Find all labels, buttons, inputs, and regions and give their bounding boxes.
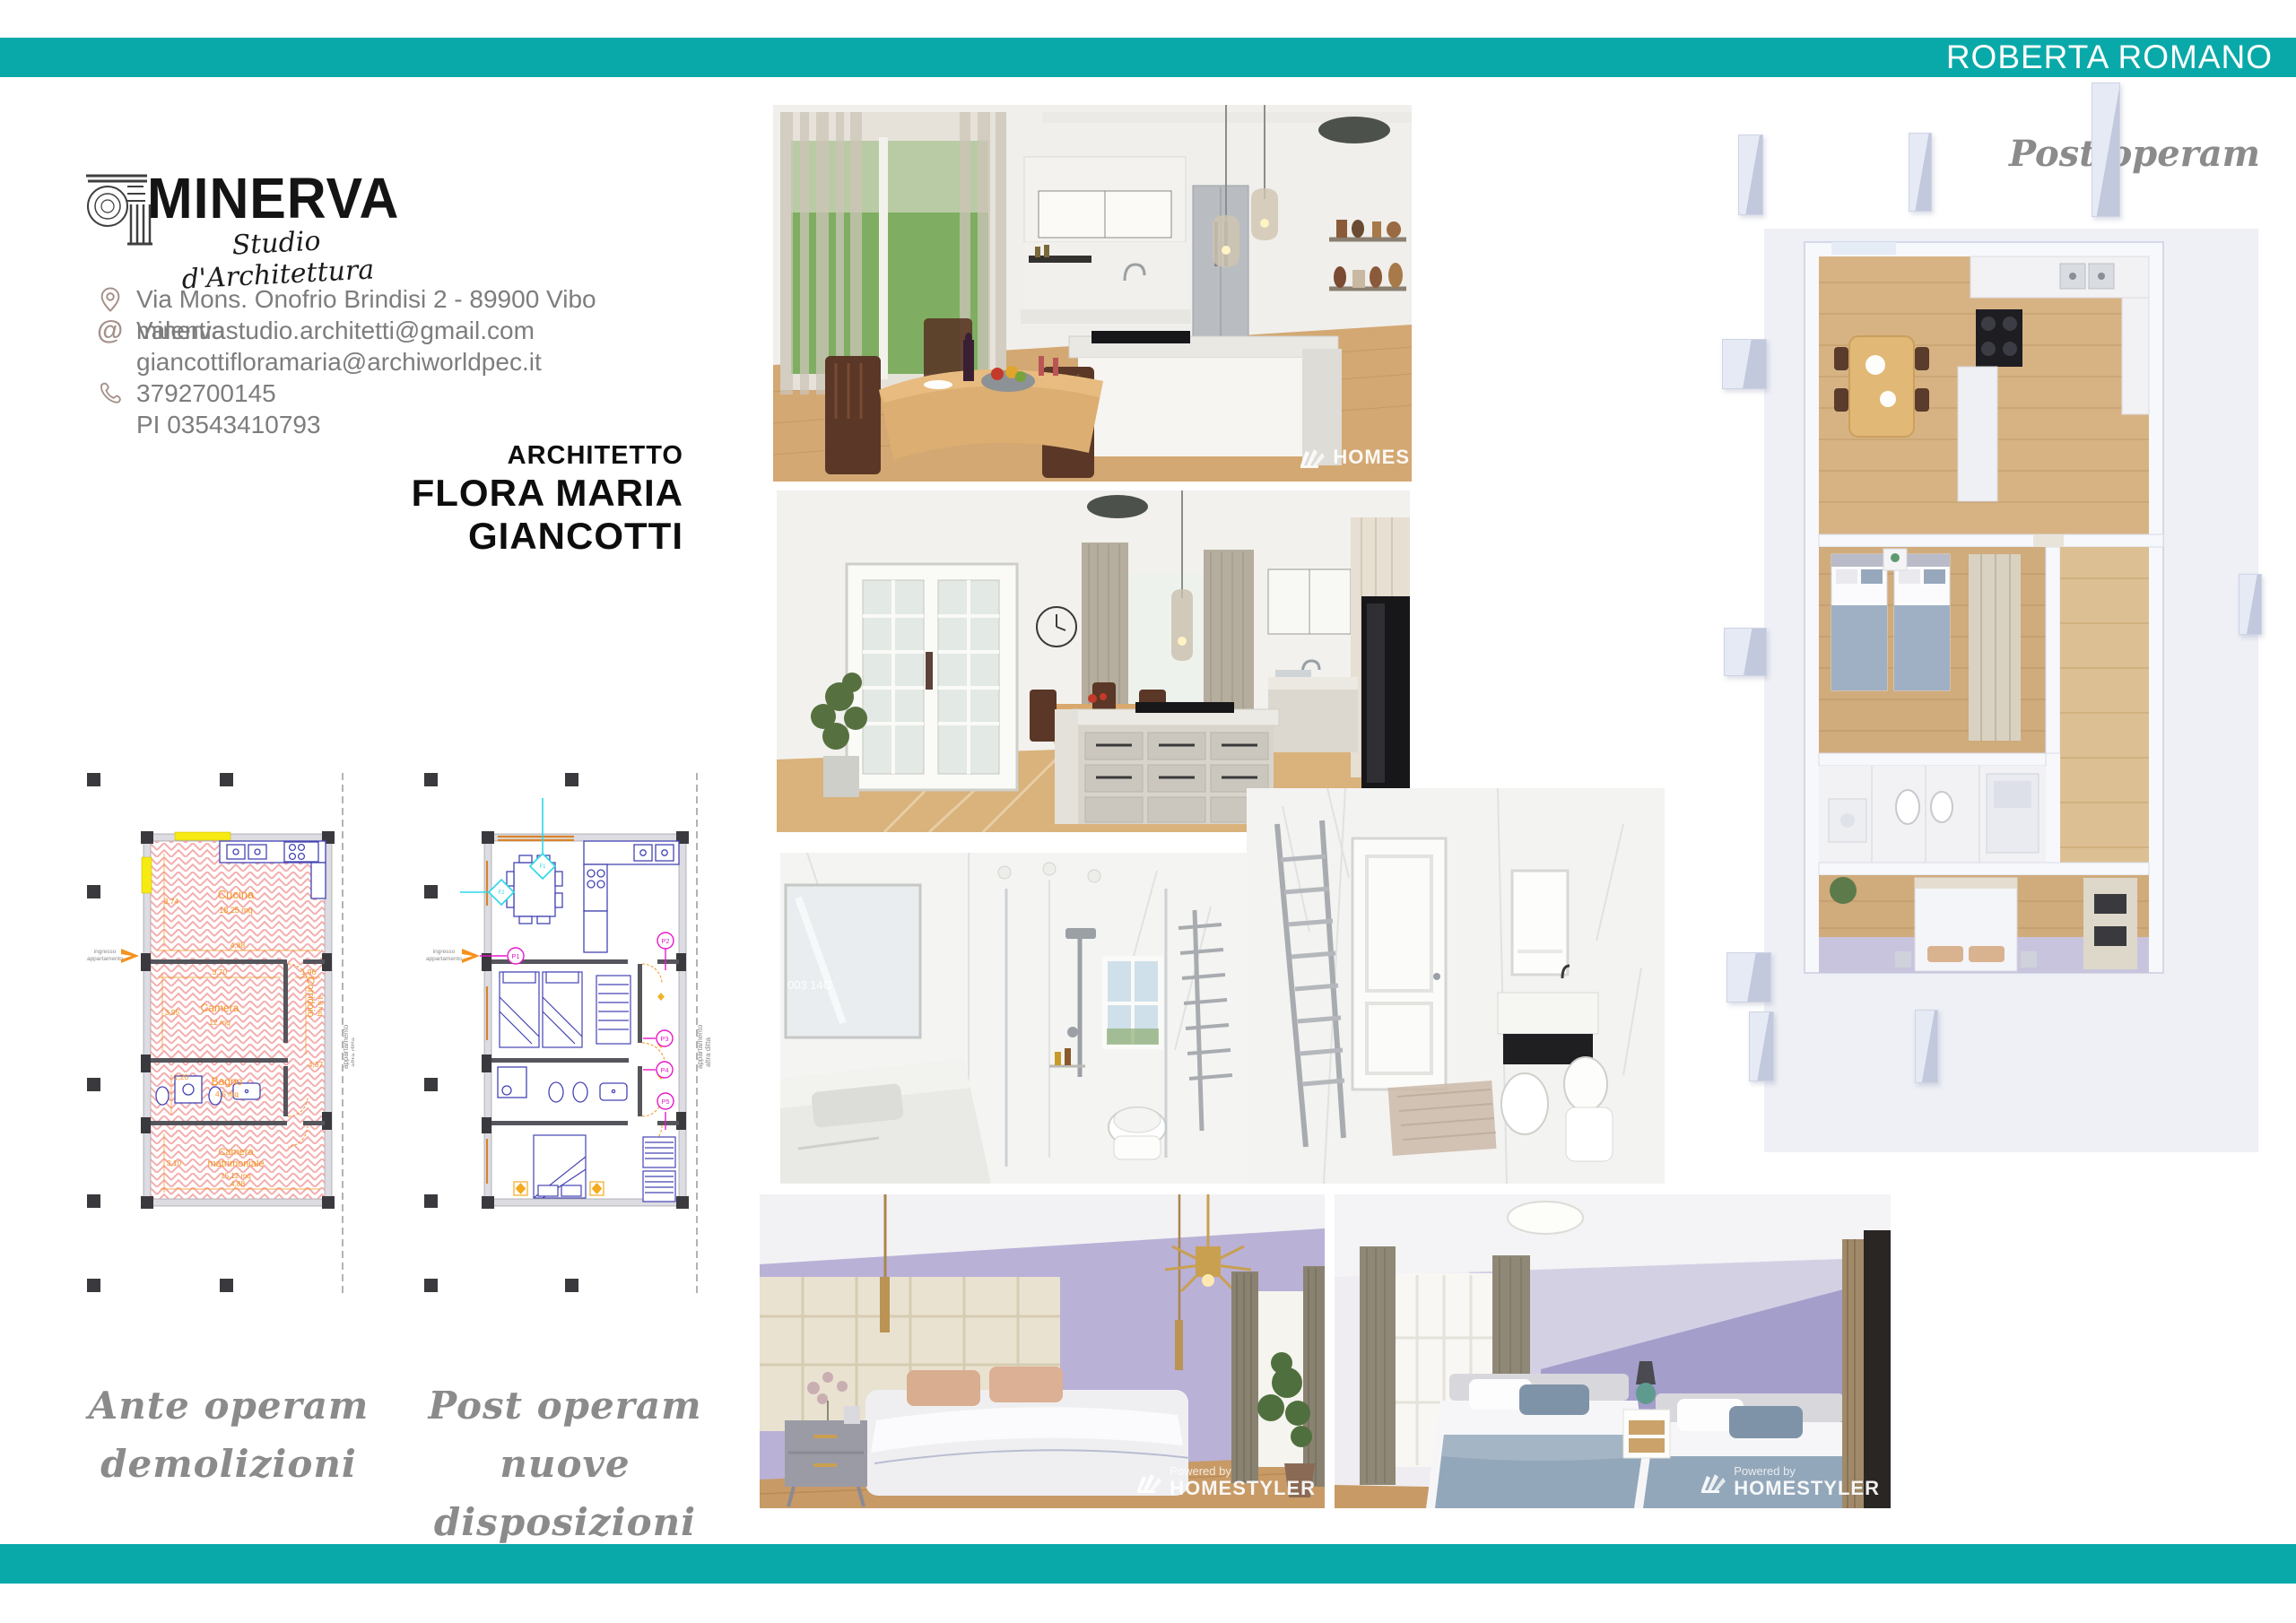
contact-phone-row: 3792700145: [97, 378, 671, 409]
render-kitchen-dining: HOMES: [773, 105, 1412, 482]
svg-text:appartamento: appartamento: [342, 1024, 350, 1069]
caption-3d-post-operam: Post operam: [1996, 133, 2274, 175]
homestyler-brand-cut: HOMES: [1333, 446, 1410, 469]
homestyler-brand: HOMESTYLER: [1170, 1478, 1316, 1499]
kitchen-island-illustration: [777, 490, 1410, 832]
svg-text:P3: P3: [660, 1035, 668, 1043]
svg-text:003 14C: 003 14C: [787, 978, 831, 992]
render-bathroom-vanity: [1247, 788, 1665, 1184]
homestyler-brand: HOMESTYLER: [1734, 1478, 1880, 1499]
svg-text:12 mq: 12 mq: [209, 1018, 230, 1027]
pillar-3d: [1738, 135, 1763, 215]
pillar-3d: [1749, 1011, 1774, 1081]
contact-vat-row: PI 03543410793: [97, 409, 671, 440]
homestyler-watermark: Powered by HOMESTYLER: [1135, 1465, 1316, 1499]
svg-text:appartamento: appartamento: [87, 956, 123, 962]
svg-text:altra ditta: altra ditta: [704, 1037, 712, 1067]
svg-text:P5: P5: [661, 1098, 669, 1106]
svg-text:1,96: 1,96: [301, 968, 317, 976]
floor-plan-post-operam: appartamento altra ditta: [408, 771, 717, 1300]
svg-text:ingresso: ingresso: [433, 949, 456, 955]
svg-text:Camera: Camera: [218, 1147, 254, 1158]
svg-text:altra ditta: altra ditta: [350, 1037, 354, 1067]
svg-text:P4: P4: [660, 1066, 668, 1074]
homestyler-watermark: Powered by HOMESTYLER: [1700, 1465, 1880, 1499]
powered-by-label: Powered by: [1170, 1465, 1231, 1478]
homestyler-watermark: HOMES: [1299, 446, 1410, 469]
svg-text:appartamento: appartamento: [696, 1024, 704, 1069]
contact-pec-row: giancottifloramaria@archiworldpec.it: [97, 346, 671, 378]
caption-post-operam: Post operam nuove disposizioni: [404, 1376, 726, 1551]
floor-plan-ante-operam: appartamento altra ditta: [85, 771, 354, 1300]
svg-text:4,5 mq: 4,5 mq: [215, 1089, 239, 1098]
svg-text:3,74: 3,74: [164, 897, 179, 906]
pillar-3d: [1909, 133, 1932, 212]
svg-text:18,25 mq: 18,25 mq: [219, 906, 253, 915]
bathroom-vanity-illustration: [1247, 788, 1665, 1184]
pillar-3d: [1915, 1010, 1938, 1083]
phone-icon: [97, 380, 124, 407]
pillar-3d: [1724, 628, 1767, 676]
svg-text:P2: P2: [661, 937, 669, 945]
powered-by-label: Powered by: [1734, 1465, 1796, 1478]
svg-text:3,10: 3,10: [167, 1159, 182, 1167]
render-kitchen-island: [777, 490, 1410, 832]
svg-text:3,70: 3,70: [213, 968, 228, 976]
presentation-board: ROBERTA ROMANO MINERVA Studio d'Architet…: [0, 0, 2296, 1623]
svg-text:Bagno: Bagno: [212, 1075, 243, 1088]
svg-text:1,20: 1,20: [174, 1072, 189, 1081]
homestyler-logo-icon: [1299, 446, 1326, 469]
bathroom-shower-illustration: 003 14C: [780, 853, 1247, 1184]
top-accent-bar: ROBERTA ROMANO: [0, 38, 2296, 77]
at-icon: @: [97, 317, 124, 344]
render-bedroom-twin: Powered by HOMESTYLER: [1335, 1194, 1891, 1508]
pillar-3d: [2239, 574, 2262, 635]
svg-text:Corridoio: Corridoio: [305, 977, 316, 1018]
architect-name: FLORA MARIA GIANCOTTI: [233, 472, 683, 558]
pillar-3d: [1726, 952, 1771, 1002]
architect-block: ARCHITETTO FLORA MARIA GIANCOTTI: [233, 441, 683, 558]
svg-text:P1: P1: [511, 952, 519, 960]
bottom-accent-bar: [0, 1544, 2296, 1584]
contact-email-row: @ minervastudio.architetti@gmail.com: [97, 315, 671, 346]
designer-name: ROBERTA ROMANO: [1946, 38, 2273, 77]
svg-text:matrimoniale: matrimoniale: [208, 1159, 265, 1169]
contact-block: Via Mons. Onofrio Brindisi 2 - 89900 Vib…: [97, 283, 671, 440]
svg-text:Camera: Camera: [201, 1002, 239, 1014]
kitchen-dining-illustration: [773, 105, 1412, 482]
svg-text:3,95: 3,95: [165, 1008, 180, 1017]
svg-text:4,88: 4,88: [230, 1179, 246, 1188]
contact-phone[interactable]: 3792700145: [136, 379, 276, 407]
studio-logo: MINERVA Studio d'Architettura: [81, 152, 422, 278]
caption-ante-operam: Ante operam demolizioni: [85, 1376, 372, 1493]
svg-text:Cucina: Cucina: [218, 888, 255, 901]
contact-address-row: Via Mons. Onofrio Brindisi 2 - 89900 Vib…: [97, 283, 671, 315]
svg-text:4,8 mq: 4,8 mq: [317, 996, 325, 1017]
location-pin-icon: [97, 286, 124, 313]
contact-email-2[interactable]: giancottifloramaria@archiworldpec.it: [136, 348, 542, 376]
floorplan-3d-illustration: [1764, 229, 2258, 1152]
render-bathroom-shower: 003 14C: [780, 853, 1247, 1184]
svg-text:F2: F2: [498, 890, 505, 896]
render-bedroom-master: Powered by HOMESTYLER: [760, 1194, 1325, 1508]
logo-title: MINERVA: [147, 165, 399, 231]
svg-text:F1: F1: [539, 864, 546, 870]
contact-vat: PI 03543410793: [136, 411, 321, 438]
svg-text:ingresso: ingresso: [94, 949, 117, 955]
svg-text:4,37: 4,37: [309, 1060, 324, 1069]
bedroom-master-illustration: [760, 1194, 1325, 1508]
pillar-3d: [1722, 339, 1767, 389]
homestyler-logo-icon: [1700, 1471, 1726, 1494]
svg-text:appartamento: appartamento: [426, 956, 462, 962]
svg-text:4,88: 4,88: [230, 941, 246, 950]
contact-email-1[interactable]: minervastudio.architetti@gmail.com: [136, 317, 535, 344]
pillar-3d: [2092, 82, 2120, 217]
architect-role: ARCHITETTO: [233, 441, 683, 471]
bedroom-twin-illustration: [1335, 1194, 1891, 1508]
render-3d-floorplan: [1764, 229, 2258, 1152]
homestyler-logo-icon: [1135, 1471, 1162, 1494]
